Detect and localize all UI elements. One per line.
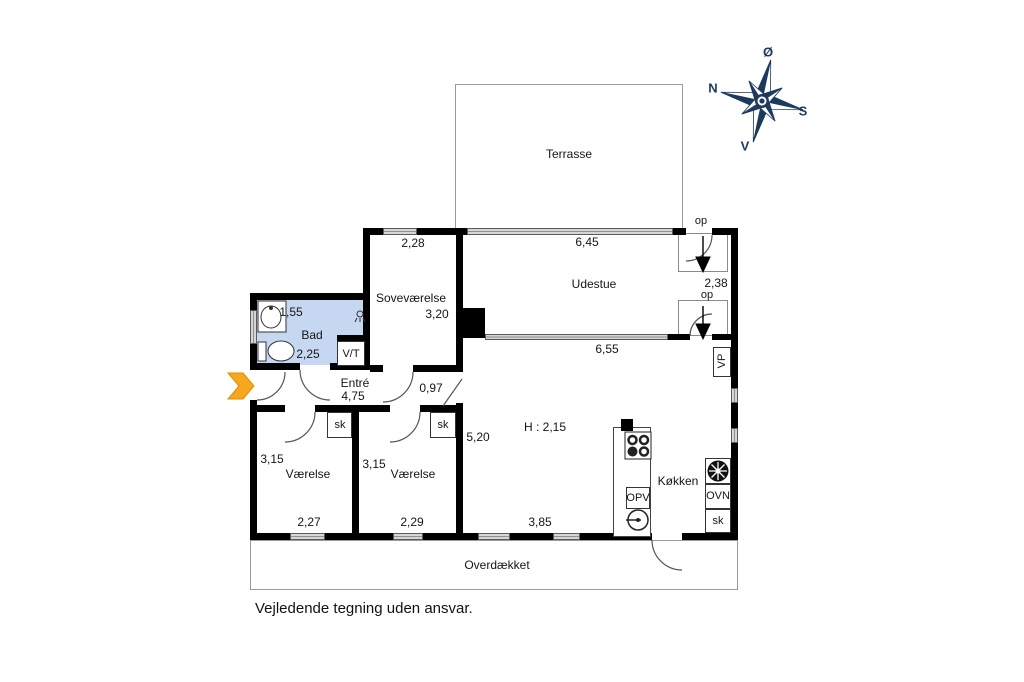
- step-label-op-1: op: [695, 215, 707, 227]
- toilet-icon: [258, 341, 294, 361]
- room-label-sovevaerelse: Soveværelse: [376, 291, 446, 305]
- compass-rose-icon: [712, 51, 812, 151]
- stove-icon: [625, 432, 651, 459]
- appliance-label-opv: OPV: [626, 492, 649, 504]
- closet-label-vt: V/T: [342, 348, 359, 360]
- shower-icon: [355, 311, 365, 322]
- dim-living-window: 6,55: [595, 342, 618, 356]
- dim-door-width: 0,97: [419, 381, 442, 395]
- room-label-overdaekket: Overdækket: [464, 558, 529, 572]
- compass-letter-east: Ø: [763, 45, 773, 60]
- closet-label-sk-2: sk: [438, 419, 449, 431]
- kitchen-sink-icon: [626, 510, 648, 530]
- dim-living-width: 3,85: [528, 515, 551, 529]
- dim-vaerelse2-depth: 3,15: [362, 457, 385, 471]
- dim-vaerelse1-width: 2,27: [297, 515, 320, 529]
- kitchen-exit-door-arc: [652, 540, 682, 570]
- dim-sovevaerelse-depth: 3,20: [425, 307, 448, 321]
- extractor-fan-icon: [708, 461, 729, 482]
- label-ceiling-height: H : 2,15: [524, 420, 566, 434]
- step-label-op-2: op: [701, 289, 713, 301]
- step-arrow-icon-1: [696, 236, 710, 272]
- bedroom-door-arc: [383, 372, 413, 402]
- floor-plan: Terrasse2,286,45Soveværelse3,20Udestueop…: [0, 0, 1024, 682]
- room-label-terrasse: Terrasse: [546, 147, 592, 161]
- dim-sovevaerelse-width: 2,28: [401, 236, 424, 250]
- dim-bad-depth: 2,25: [296, 347, 319, 361]
- dim-vaerelse1-depth: 3,15: [260, 452, 283, 466]
- compass-letter-north: N: [708, 81, 717, 96]
- closet-label-sk-3: sk: [713, 515, 724, 527]
- dim-bad-width: 1,55: [279, 305, 302, 319]
- step-arrow-icon-2: [696, 306, 710, 339]
- room-label-entre: Entré: [341, 376, 370, 390]
- label-vp: VP: [716, 354, 728, 369]
- dim-udestue-depth: 2,38: [704, 276, 727, 290]
- front-door-arc: [257, 372, 285, 400]
- entrance-arrow-icon: [228, 373, 254, 399]
- room-label-vaerelse-2: Værelse: [391, 467, 436, 481]
- dim-vaerelse2-width: 2,29: [400, 515, 423, 529]
- appliance-label-ovn: OVN: [706, 490, 730, 502]
- closet-label-sk-1: sk: [335, 419, 346, 431]
- dim-living-depth: 5,20: [466, 430, 489, 444]
- room-label-bad: Bad: [301, 328, 322, 342]
- room-label-koekken: Køkken: [658, 474, 699, 488]
- dim-entre-width: 4,75: [341, 389, 364, 403]
- room-label-udestue: Udestue: [572, 277, 617, 291]
- living-door-line: [443, 379, 462, 406]
- room1-door-arc: [285, 412, 315, 442]
- compass-letter-south: S: [799, 104, 808, 119]
- compass-letter-west: V: [741, 139, 750, 154]
- disclaimer-text: Vejledende tegning uden ansvar.: [255, 600, 473, 617]
- room-label-vaerelse-1: Værelse: [286, 467, 331, 481]
- room2-door-arc: [390, 412, 420, 442]
- bath-door-arc: [300, 370, 330, 400]
- dim-udestue-window: 6,45: [575, 235, 598, 249]
